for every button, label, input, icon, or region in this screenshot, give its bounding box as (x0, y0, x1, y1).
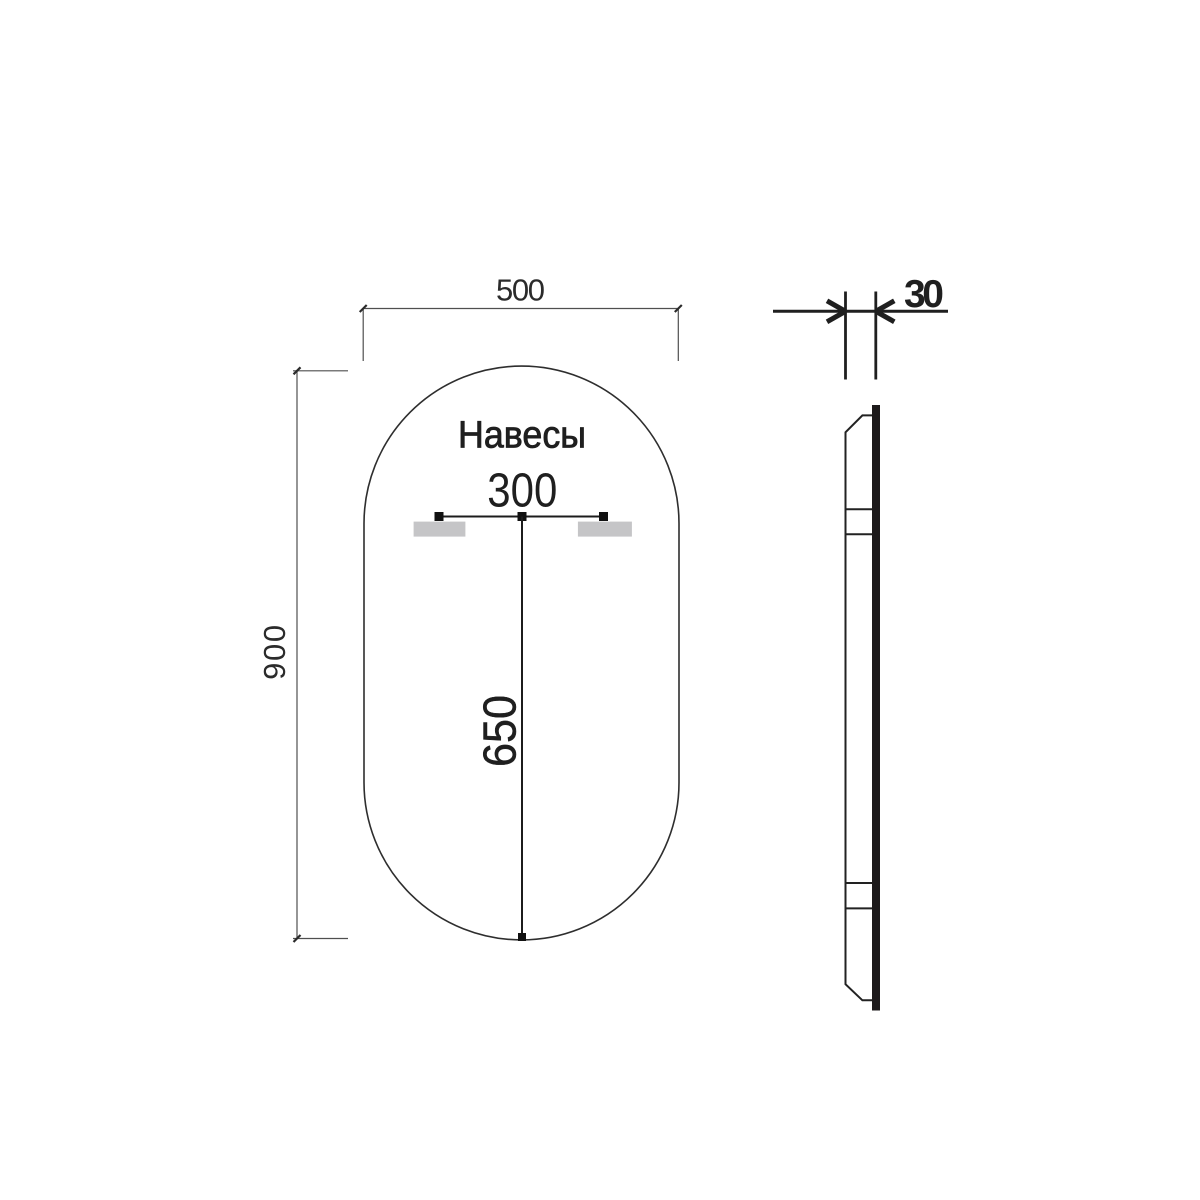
svg-text:500: 500 (496, 273, 545, 308)
svg-text:30: 30 (904, 273, 944, 316)
svg-text:300: 300 (487, 465, 557, 518)
svg-text:650: 650 (474, 695, 526, 767)
svg-text:Навесы: Навесы (458, 415, 586, 457)
svg-text:900: 900 (257, 625, 292, 680)
